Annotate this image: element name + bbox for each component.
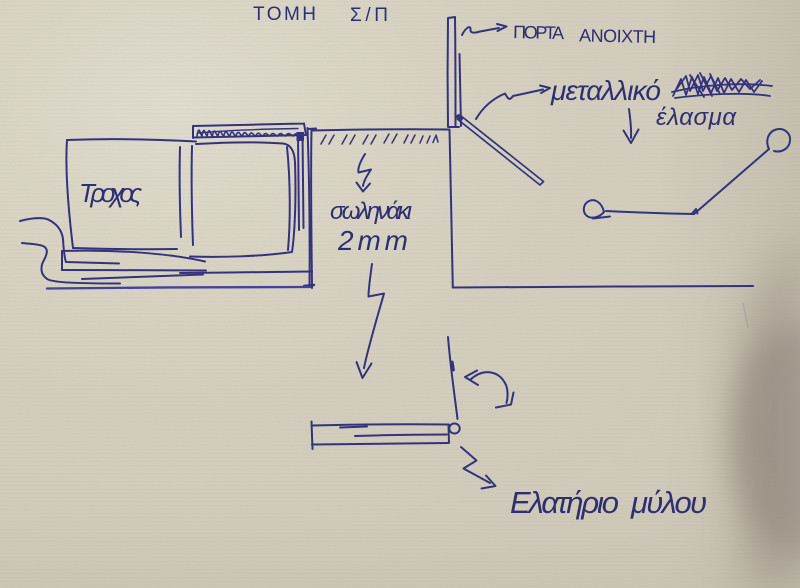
svg-text:σωληνάκι: σωληνάκι <box>330 198 412 225</box>
svg-text:ΑΝΟΙΧΤΗ: ΑΝΟΙΧΤΗ <box>579 25 658 47</box>
svg-text:ΤΟΜΗ: ΤΟΜΗ <box>253 4 319 25</box>
svg-text:μύλου: μύλου <box>630 485 707 520</box>
svg-text:ΠΟΡΤΑ: ΠΟΡΤΑ <box>513 22 566 43</box>
svg-text:Τροχος: Τροχος <box>79 178 142 208</box>
svg-text:2mm: 2mm <box>337 225 408 256</box>
svg-text:Ελατήριο: Ελατήριο <box>510 485 619 520</box>
svg-text:μεταλλικό: μεταλλικό <box>550 75 661 106</box>
svg-text:Σ/Π: Σ/Π <box>350 5 388 26</box>
svg-text:έλασμα: έλασμα <box>656 104 737 131</box>
